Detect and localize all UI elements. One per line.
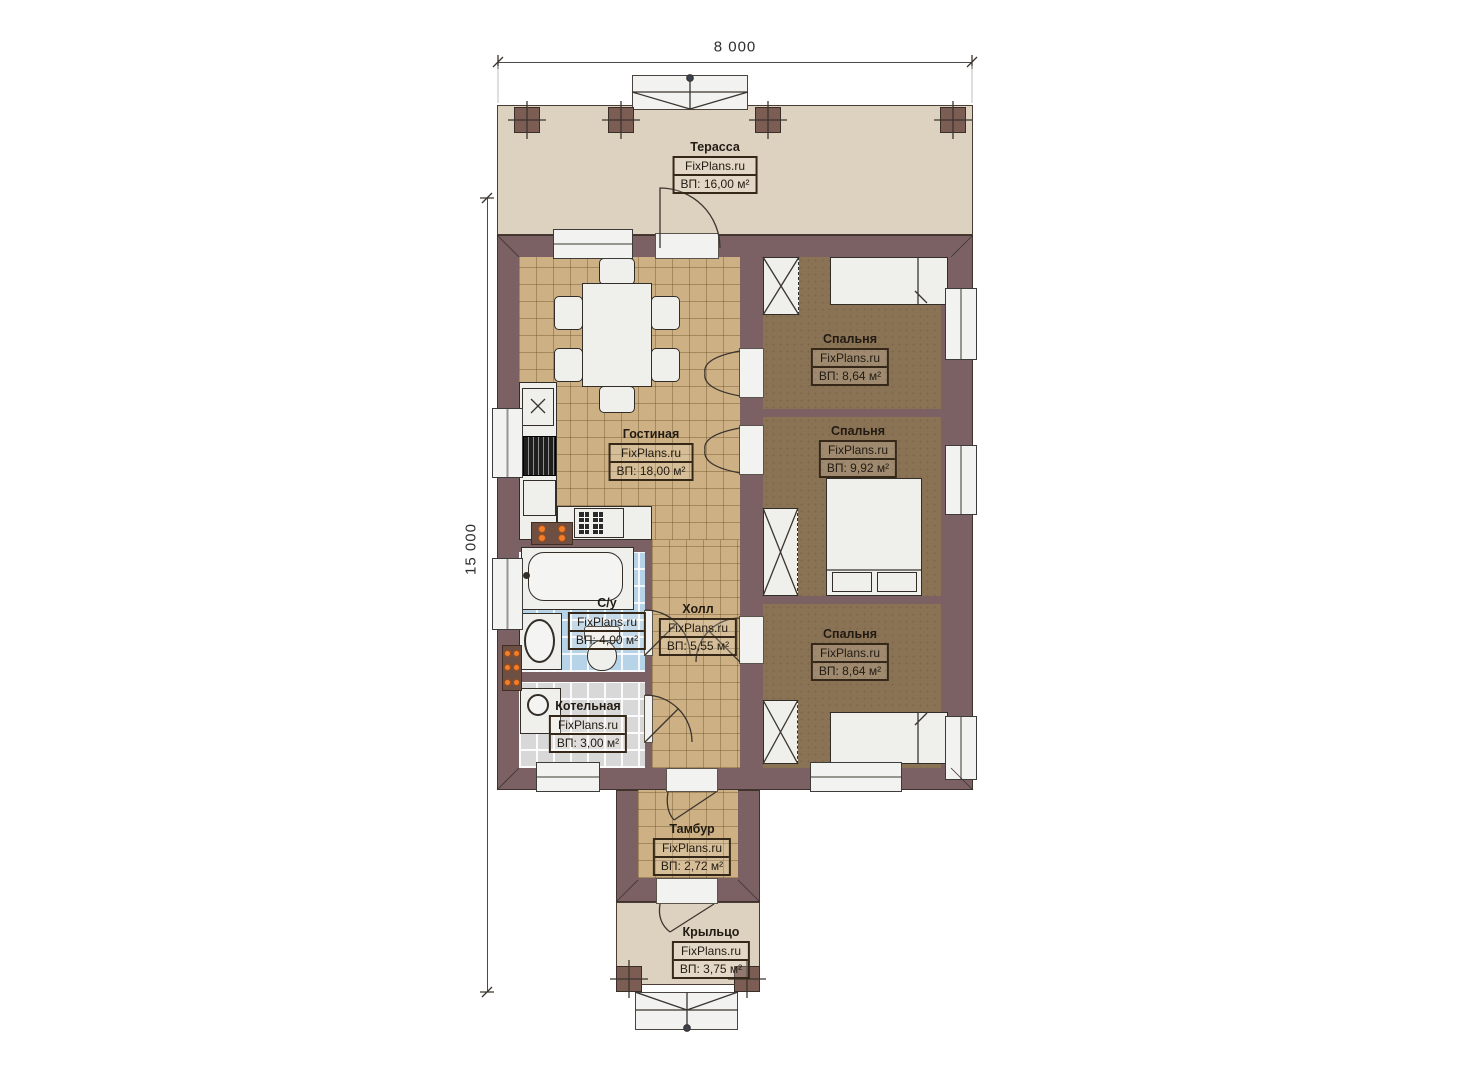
- room-area: ВП: 8,64 м²: [813, 366, 887, 384]
- watermark: FixPlans.ru: [821, 442, 895, 458]
- room-label-vestibule: Тамбур FixPlans.ru ВП: 2,72 м²: [653, 822, 731, 876]
- room-label-boiler: Котельная FixPlans.ru ВП: 3,00 м²: [549, 699, 627, 753]
- door-opening-bedroom-bottom: [739, 616, 764, 664]
- room-area: ВП: 3,75 м²: [674, 959, 748, 977]
- watermark: FixPlans.ru: [813, 350, 887, 366]
- wardrobe: [763, 257, 799, 315]
- dimension-line-height: [487, 198, 488, 992]
- room-name: Спальня: [811, 627, 889, 641]
- stove: [574, 508, 624, 538]
- room-name: Терасса: [673, 140, 758, 154]
- room-name: Гостиная: [609, 427, 694, 441]
- room-label-bedroom-middle: Спальня FixPlans.ru ВП: 9,92 м²: [819, 424, 897, 478]
- dining-chair: [651, 348, 680, 382]
- room-label-bedroom-top: Спальня FixPlans.ru ВП: 8,64 м²: [811, 332, 889, 386]
- room-label-bathroom: С/у FixPlans.ru ВП: 4,00 м²: [568, 596, 646, 650]
- room-area: ВП: 8,64 м²: [813, 661, 887, 679]
- room-name: Крыльцо: [672, 925, 750, 939]
- terrace-column: [940, 107, 966, 133]
- terrace-entry-steps: [632, 75, 748, 110]
- door-opening-terrace: [655, 233, 719, 259]
- room-label-terrace: Терасса FixPlans.ru ВП: 16,00 м²: [673, 140, 758, 194]
- room-name: Котельная: [549, 699, 627, 713]
- bed-single: [830, 257, 948, 305]
- watermark: FixPlans.ru: [570, 614, 644, 630]
- bed-single: [830, 712, 948, 764]
- door-opening-bedroom-top: [739, 348, 764, 398]
- window: [945, 445, 977, 515]
- room-area: ВП: 3,00 м²: [551, 733, 625, 751]
- room-name: Спальня: [819, 424, 897, 438]
- kitchen-cabinet: [523, 480, 556, 516]
- room-area: ВП: 5,55 м²: [661, 636, 735, 654]
- watermark: FixPlans.ru: [655, 840, 729, 856]
- terrace-column: [755, 107, 781, 133]
- door-opening-porch: [656, 878, 718, 904]
- door-opening-vestibule: [666, 768, 718, 792]
- room-name: Тамбур: [653, 822, 731, 836]
- porch-steps: [635, 992, 738, 1030]
- room-label-porch: Крыльцо FixPlans.ru ВП: 3,75 м²: [672, 925, 750, 979]
- room-name: С/у: [568, 596, 646, 610]
- pillow: [832, 572, 872, 592]
- dining-chair: [599, 258, 635, 285]
- dining-chair: [651, 296, 680, 330]
- watermark: FixPlans.ru: [661, 620, 735, 636]
- dining-chair: [554, 348, 583, 382]
- dining-chair: [599, 386, 635, 413]
- wardrobe: [763, 700, 798, 764]
- window: [536, 762, 600, 792]
- room-label-living: Гостиная FixPlans.ru ВП: 18,00 м²: [609, 427, 694, 481]
- dimension-width-label: 8 000: [711, 39, 760, 56]
- room-area: ВП: 9,92 м²: [821, 458, 895, 476]
- window: [945, 288, 977, 360]
- kitchen-sink: [522, 388, 554, 426]
- floor-plan-canvas: 8 000 15 000: [0, 0, 1473, 1080]
- washbasin: [519, 613, 562, 670]
- room-name: Холл: [659, 602, 737, 616]
- window: [810, 762, 902, 792]
- watermark: FixPlans.ru: [813, 645, 887, 661]
- window: [553, 229, 633, 259]
- room-label-hall: Холл FixPlans.ru ВП: 5,55 м²: [659, 602, 737, 656]
- window: [492, 558, 523, 630]
- window: [945, 716, 977, 780]
- room-area: ВП: 4,00 м²: [570, 630, 644, 648]
- radiator: [531, 522, 573, 545]
- watermark: FixPlans.ru: [675, 158, 756, 174]
- watermark: FixPlans.ru: [611, 445, 692, 461]
- room-area: ВП: 16,00 м²: [675, 174, 756, 192]
- wardrobe: [763, 508, 798, 596]
- dining-table: [582, 283, 652, 387]
- fridge: [523, 436, 556, 476]
- room-area: ВП: 2,72 м²: [655, 856, 729, 874]
- window: [492, 408, 523, 478]
- terrace-column: [608, 107, 634, 133]
- pillow: [877, 572, 917, 592]
- terrace-column: [514, 107, 540, 133]
- radiator: [502, 645, 522, 691]
- room-area: ВП: 18,00 м²: [611, 461, 692, 479]
- dining-chair: [554, 296, 583, 330]
- porch-column: [616, 966, 642, 992]
- room-label-bedroom-bottom: Спальня FixPlans.ru ВП: 8,64 м²: [811, 627, 889, 681]
- watermark: FixPlans.ru: [674, 943, 748, 959]
- dimension-height-label: 15 000: [463, 520, 480, 578]
- room-name: Спальня: [811, 332, 889, 346]
- dimension-line-width: [498, 62, 972, 63]
- door-opening-bedroom-middle: [739, 425, 764, 475]
- watermark: FixPlans.ru: [551, 717, 625, 733]
- door-opening-boiler: [644, 695, 653, 743]
